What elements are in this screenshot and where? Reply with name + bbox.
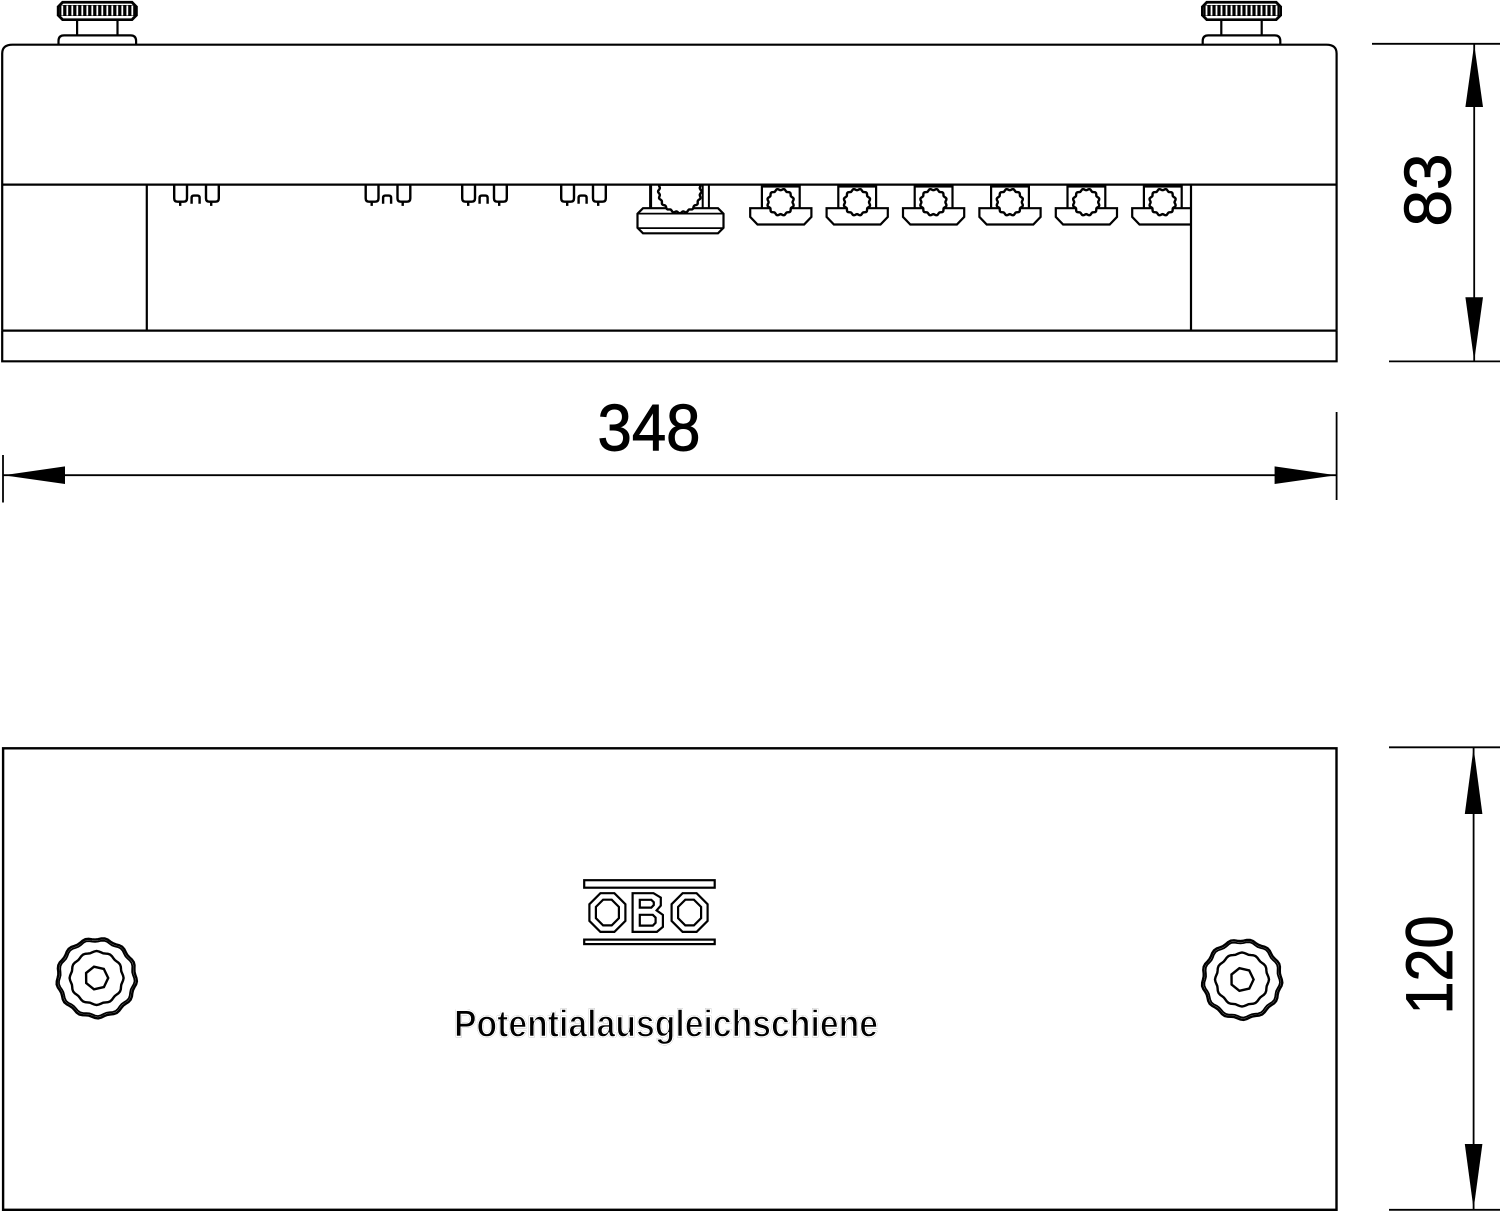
- svg-text:Potentialausgleichschiene: Potentialausgleichschiene: [454, 1004, 878, 1046]
- svg-text:120: 120: [1392, 916, 1466, 1015]
- svg-text:348: 348: [598, 391, 701, 465]
- svg-text:83: 83: [1391, 154, 1465, 227]
